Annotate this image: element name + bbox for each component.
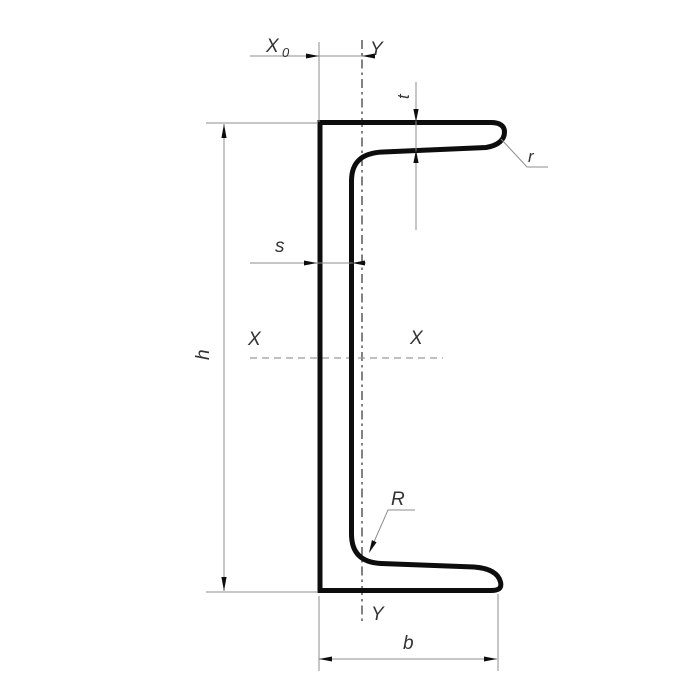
dimension-b: b	[319, 594, 498, 671]
t-label: t	[394, 93, 413, 99]
r-leader-line	[501, 139, 548, 167]
leader-r: r	[501, 139, 548, 167]
dimension-t: t	[394, 82, 419, 230]
r-label: r	[528, 147, 535, 166]
h-arrow-up-icon	[221, 124, 226, 138]
x0-subscript-label: 0	[282, 45, 290, 60]
R-label: R	[391, 489, 405, 510]
leader-R: R	[369, 489, 415, 553]
x-axis-left-label: X	[247, 329, 262, 350]
R-arrow-icon	[369, 540, 377, 553]
h-arrow-down-icon	[221, 577, 226, 591]
x-axis-right-label: X	[409, 328, 424, 349]
s-label: s	[275, 236, 285, 257]
drawing-canvas: X 0 Y Y t r s X X h R	[0, 0, 700, 700]
dimension-s: s	[250, 236, 366, 266]
x0-label: X	[265, 36, 280, 57]
y-axis-top-label: Y	[370, 39, 384, 60]
y-axis-bottom-label: Y	[371, 604, 385, 625]
b-arrow-left-icon	[319, 657, 332, 662]
dimension-x0: X 0	[250, 36, 375, 122]
s-arrow-right-icon	[304, 261, 317, 266]
b-label: b	[403, 633, 414, 654]
R-leader-line	[370, 510, 415, 551]
channel-section-drawing: X 0 Y Y t r s X X h R	[0, 0, 700, 700]
h-label: h	[193, 349, 214, 360]
x0-arrow-right-icon	[306, 54, 319, 59]
channel-profile-outline	[320, 123, 505, 591]
b-arrow-right-icon	[484, 657, 497, 662]
